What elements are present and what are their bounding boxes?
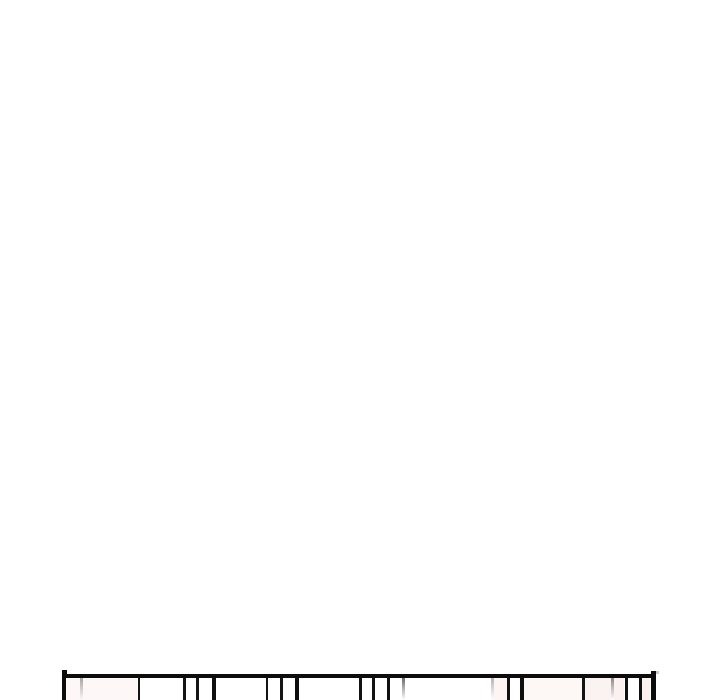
panel-slat-line [212,678,216,700]
panel-slat-line [611,678,614,700]
panel-slat-line [387,678,391,700]
panel-tint-cell [614,678,624,700]
panel-slat-line [507,678,510,700]
panel-slat-line [372,678,375,700]
panel-slat-line [639,678,643,700]
panel-slat-line [582,678,585,700]
panel-tint-cell [66,678,137,700]
blank-area [0,0,720,674]
panel-slat-line [138,678,141,700]
panel-slat-line [402,678,406,700]
panel-slat-line [280,678,283,700]
panel-slat-line [80,678,83,700]
panel-slat-line [266,678,269,700]
panel-slat-line [359,678,362,700]
panel-slat-line [196,678,199,700]
panel-tint-cell [524,678,582,700]
panel-slat-line [295,678,299,700]
panel-tint-cell [585,678,611,700]
panel-border-right [651,671,657,700]
panel-slat-line [520,678,524,700]
panel-slat-line [491,678,494,700]
comic-page [0,0,720,700]
panel-tint-cell [494,678,507,700]
panel-slat-line [625,678,629,700]
panel-corner-notch [656,671,659,674]
panel-slat-line [183,678,186,700]
panel-tint-cell [642,678,650,700]
